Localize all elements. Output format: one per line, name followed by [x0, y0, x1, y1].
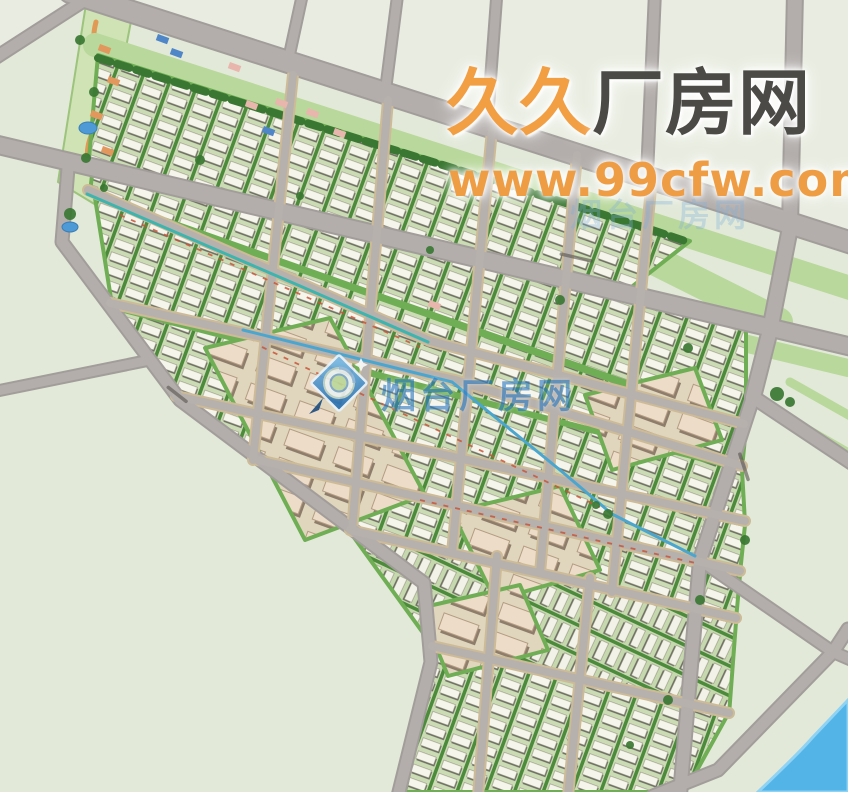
tree-clump — [785, 397, 795, 407]
tree-clump — [75, 35, 85, 45]
tree-clump — [195, 155, 205, 165]
tree-clump — [89, 87, 99, 97]
tree-clump — [426, 246, 434, 254]
tree-clump — [695, 595, 705, 605]
pond — [79, 122, 97, 134]
masterplan-map — [0, 0, 848, 792]
tree-clump — [603, 509, 613, 519]
tree-clump — [592, 501, 600, 509]
masterplan-screenshot: { "watermarks": { "main": { "part1": "久久… — [0, 0, 848, 792]
tree-clump — [626, 741, 634, 749]
tree-clump — [296, 192, 304, 200]
tree-clump — [64, 208, 76, 220]
site-plan-rendering — [0, 0, 848, 792]
tree-clump — [81, 153, 91, 163]
tree-clump — [663, 695, 673, 705]
tree-clump — [555, 295, 565, 305]
tree-clump — [100, 184, 108, 192]
tree-clump — [683, 343, 693, 353]
tree-clump — [770, 387, 784, 401]
pond — [62, 222, 78, 232]
tree-clump — [740, 535, 750, 545]
